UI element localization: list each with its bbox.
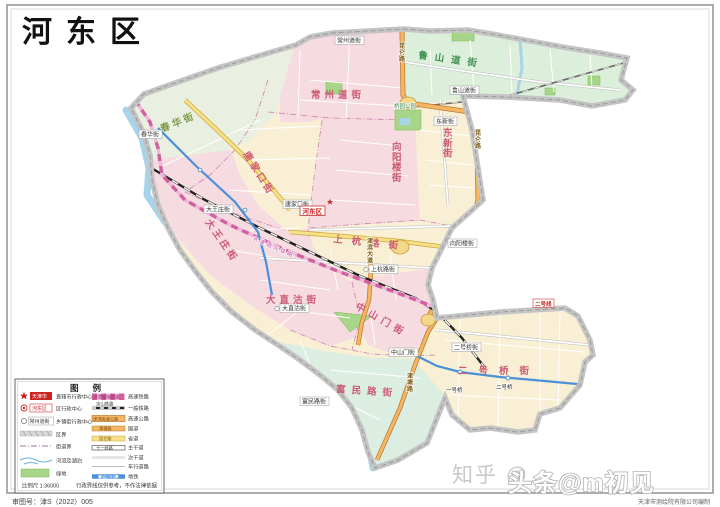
- legend-label-national-road: 国道: [128, 425, 138, 433]
- legend-hsr-name: 京津城际铁路: [93, 394, 120, 401]
- legend-label-metro: 地铁: [128, 473, 138, 481]
- legend-label-river: 河流及湖泊: [56, 457, 82, 465]
- label-dongxin-big: 东新街: [442, 127, 453, 160]
- label-xiangyanglou-big: 向阳楼街: [391, 141, 402, 184]
- legend-label-green: 绿地: [56, 470, 66, 478]
- box-dazhigu: 大直沽街: [282, 305, 306, 313]
- legend-label-minor-road: 车行道路: [128, 463, 150, 471]
- interchange-south: [421, 314, 435, 326]
- district-marker-label: 河东区: [303, 207, 323, 216]
- legend-label-railway: 一般铁路: [128, 404, 150, 412]
- hedong-district-map: 河东区: [0, 0, 720, 507]
- label-station-erhaoqiao: 二号桥: [496, 383, 513, 391]
- box-shanghanglu: 上杭路街: [371, 266, 395, 274]
- label-changzhoudao-big: 常州道街: [311, 89, 365, 101]
- legend-railway-name: 京山铁路: [96, 401, 114, 408]
- label-station-yihaoqiao: 一号桥: [446, 386, 463, 394]
- greenland-symbol: [21, 469, 49, 477]
- box-dawangzhuang: 大王庄街: [206, 206, 230, 214]
- legend-label-hsr: 高速铁路: [128, 393, 150, 401]
- legend-provincial-road-name: 昆仑路: [99, 435, 112, 442]
- legend-note: 行政界线仅供参考，不作法律依据: [76, 482, 157, 490]
- legend-label-provincial-road: 省道: [128, 435, 138, 443]
- legend-expressway-name: 津滨高速公路: [93, 415, 119, 422]
- box-changzhoudao: 常州道街: [337, 37, 361, 45]
- legend-label-street-boundary: 街道界: [56, 443, 72, 451]
- producer-credit: 天津市测绘院有限公司编制: [638, 498, 710, 506]
- legend-label-secondary-road: 次干道: [128, 454, 144, 462]
- legend-label-main-road: 主干道: [128, 444, 144, 452]
- label-erhaoqiao-big: 二号桥街: [458, 365, 540, 377]
- box-dongxin: 东新街: [436, 118, 454, 126]
- legend-title: 图例: [70, 383, 115, 393]
- town-center-icon: [21, 418, 26, 423]
- legend-main-road-name: 十一经路: [96, 444, 114, 451]
- label-jinbin: 津滨大道: [367, 237, 373, 264]
- legend-town-name: 常州道街: [30, 418, 50, 425]
- box-lushandao: 鲁山道街: [452, 87, 476, 95]
- legend-tianjin-name: 天津市: [32, 393, 47, 400]
- legend-metro-name: 地铁2号线: [98, 473, 118, 480]
- legend-scale: 比例尺 1:36000: [22, 482, 59, 490]
- box-chunhua: 春华街: [141, 131, 159, 139]
- legend-hedong-name: 河东区: [32, 405, 47, 412]
- label-jintang: 津塘路: [407, 372, 414, 393]
- legend-label-capital: 直辖市行政中心: [56, 393, 92, 401]
- park-lake: [400, 118, 410, 125]
- metro-line2-badge: 二号线: [533, 299, 554, 308]
- label-kunlun-north: 昆仑路: [399, 42, 406, 63]
- box-zhongshanmen: 中山门街: [391, 349, 415, 357]
- legend-label-district-boundary: 区界: [56, 432, 66, 439]
- label-qiaoyuan-park: 桥园公园: [394, 102, 417, 110]
- page-title: 河东区: [22, 15, 154, 49]
- box-erhaoqiao: 二号桥街: [454, 344, 478, 352]
- legend-label-district: 区行政中心: [56, 405, 82, 413]
- approval-number: 审图号：津S（2022）005: [12, 497, 93, 506]
- legend-national-road-name: 津塘路: [99, 425, 112, 432]
- box-xiangyanglou: 向阳楼街: [450, 240, 474, 248]
- label-line2: 二号线: [535, 300, 552, 308]
- label-kunlun-south: 昆仑路: [475, 129, 482, 150]
- map-page: 河东区: [0, 0, 720, 507]
- legend-label-town: 乡镇街行政中心: [56, 418, 92, 426]
- legend: 图例 天津市 直辖市行政中心 河东区 区行政中心 常州道街 乡镇街行政中心 区界…: [15, 379, 164, 493]
- legend-label-expressway: 高速公路: [128, 415, 150, 423]
- box-fuminlu: 富民路街: [302, 398, 326, 406]
- district-center-dot: [23, 407, 25, 409]
- watermark-toutiao: 头条@m初见: [508, 470, 655, 497]
